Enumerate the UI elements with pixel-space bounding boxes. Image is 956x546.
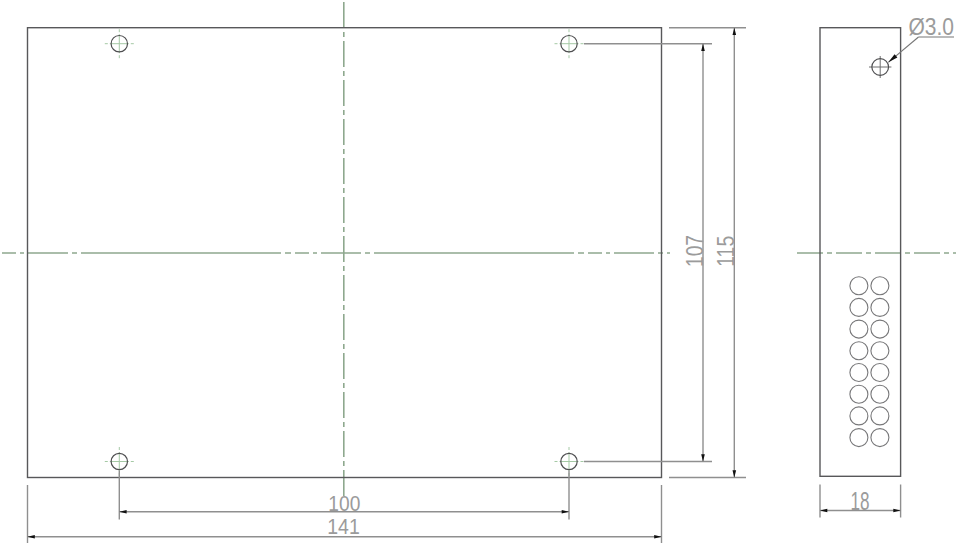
svg-text:115: 115 (712, 236, 739, 267)
svg-text:18: 18 (851, 487, 870, 515)
svg-text:100: 100 (328, 491, 360, 516)
svg-text:Ø3.0: Ø3.0 (909, 13, 955, 40)
svg-text:141: 141 (327, 514, 360, 539)
svg-text:107: 107 (681, 235, 708, 267)
